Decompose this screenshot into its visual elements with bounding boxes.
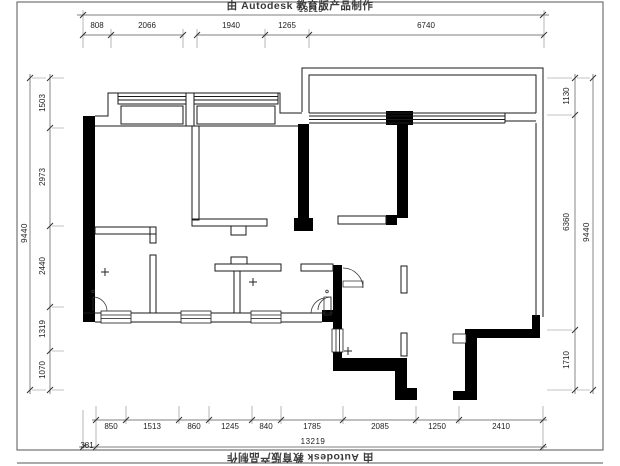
door-jamb-lower [231,257,247,264]
dim-top-seg-2: 2066 [125,21,169,31]
right-wall [536,112,543,317]
dim-left-seg-5: 1070 [38,348,48,392]
wall-entry-step-foot [407,388,417,400]
wall-column-top-foot [386,215,397,225]
dim-left-seg-4: 1319 [38,307,48,351]
bay-sill-right [197,106,275,124]
door-hall [343,268,363,288]
partition-walls-layer [83,68,543,356]
dim-left-seg-3: 2440 [38,244,48,288]
wall-bedroom2-horizontal [215,264,281,271]
dim-bottom-seg-8: 1250 [415,422,459,432]
wall-bedroom1-vertical [192,126,199,220]
door-marker-2 [326,290,329,293]
wall-entry-step [395,358,407,400]
sheet-frame [17,2,603,463]
bay-window-left [118,93,186,104]
door-jamb-upper [231,226,246,235]
dim-top-total: 13219 [289,5,333,15]
window-bottom-3 [251,311,281,323]
autodesk-watermark-bottom: 由 Autodesk 教育版产品制作 [145,450,455,463]
dim-right-seg-2: 6360 [562,200,572,244]
dim-bottom-seg-6: 1785 [290,422,334,432]
dim-bottom-seg-7: 2085 [358,422,402,432]
dim-top-seg-1: 808 [75,21,119,31]
niche-porch [453,334,466,343]
floorplan-sheet: 由 Autodesk 教育版产品制作 由 Autodesk 教育版产品制作 13… [0,0,620,466]
dim-right-total: 9440 [582,210,592,254]
wall-kitchen-upper [401,266,407,293]
dim-right-seg-3: 1710 [562,338,572,382]
wall-right-corner [532,315,540,329]
dim-bottom-seg-9: 2410 [479,422,523,432]
sill-hall [338,216,386,224]
window-band [309,113,536,123]
wall-porch-horizontal [477,329,540,338]
window-bottom-1 [101,311,131,323]
window-bottom-2 [181,311,211,323]
dim-top-seg-3: 1940 [209,21,253,31]
wall-kitchen-lower [401,333,407,356]
dim-left-total: 9440 [20,211,30,255]
wall-column-center-foot [294,218,313,231]
dim-bottom-seg-5: 840 [244,422,288,432]
wall-column-top [397,125,408,218]
wall-left [83,116,95,322]
dim-bottom-seg-2: 1513 [130,422,174,432]
dim-bottom-offset: 381 [72,441,102,451]
wall-bedroom3-horizontal [301,264,333,271]
dim-left-seg-1: 1503 [38,81,48,125]
window-entry-side [332,329,343,352]
wall-porch-foot [453,391,465,400]
dim-top-seg-4: 1265 [265,21,309,31]
wall-bedroom2-vertical [234,271,240,313]
windows-layer [101,311,466,352]
floorplan-drawing [0,0,620,466]
dim-bottom-seg-1: 850 [89,422,133,432]
wall-bath-vertical [150,255,156,313]
wall-column-center [298,124,309,220]
wall-bath-stub [150,227,156,243]
balcony-walls [302,68,543,113]
wall-bath-horizontal [95,227,156,234]
dim-bottom-total: 13219 [291,437,335,447]
bay-window-mullion [186,93,194,126]
wall-entry-bottom [333,358,397,371]
door-bath [93,297,107,311]
dim-left-seg-2: 2973 [38,155,48,199]
bay-window-right [194,93,278,104]
wall-porch-vertical [465,329,477,400]
cross-markers [101,268,352,355]
wall-bedroom1-horizontal [192,219,267,226]
bay-sill-left [121,106,183,124]
dim-right-seg-1: 1130 [562,74,572,118]
dim-top-seg-5: 6740 [404,21,448,31]
